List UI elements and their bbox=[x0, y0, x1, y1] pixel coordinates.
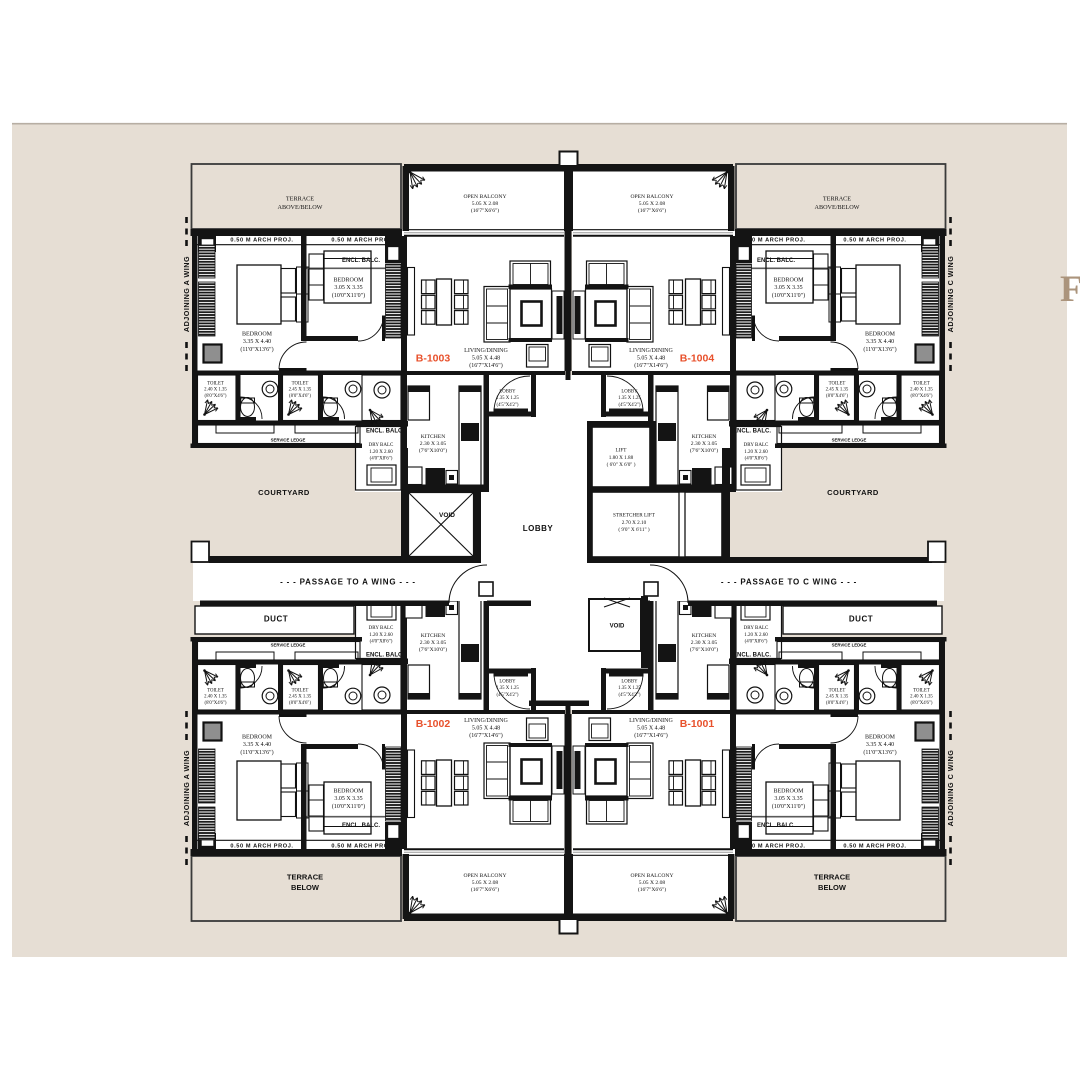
svg-text:COURTYARD: COURTYARD bbox=[827, 488, 879, 497]
svg-text:(16'7"X6'6"): (16'7"X6'6") bbox=[638, 886, 666, 893]
svg-text:(4'0"X8'6"): (4'0"X8'6") bbox=[370, 640, 393, 645]
svg-text:2.40 X 1.35: 2.40 X 1.35 bbox=[910, 388, 933, 393]
svg-text:3.05 X 3.35: 3.05 X 3.35 bbox=[334, 796, 362, 802]
svg-text:(16'7"X6'6"): (16'7"X6'6") bbox=[471, 886, 499, 893]
svg-text:(8'0"X4'6"): (8'0"X4'6") bbox=[911, 394, 933, 399]
svg-text:- - - PASSAGE TO C WIN: - - - PASSAGE TO C WING - - - bbox=[721, 577, 857, 586]
svg-text:(16'7"X14'6"): (16'7"X14'6") bbox=[634, 732, 667, 739]
svg-text:5.05 X 2.08: 5.05 X 2.08 bbox=[639, 201, 666, 207]
svg-text:BEDROOM: BEDROOM bbox=[865, 331, 896, 337]
svg-text:OPEN BALCONY: OPEN BALCONY bbox=[630, 873, 673, 879]
svg-text:(7'6"X10'0"): (7'6"X10'0") bbox=[419, 646, 447, 653]
svg-text:BEDROOM: BEDROOM bbox=[242, 734, 273, 740]
svg-text:(8'0"X4'6"): (8'0"X4'6") bbox=[289, 394, 311, 399]
svg-text:VOID: VOID bbox=[439, 512, 455, 519]
svg-text:LOBBY: LOBBY bbox=[523, 524, 554, 533]
svg-text:1.20 X 2.60: 1.20 X 2.60 bbox=[744, 633, 768, 638]
svg-text:LOBBY: LOBBY bbox=[499, 680, 516, 685]
svg-text:5.05 X 4.48: 5.05 X 4.48 bbox=[472, 726, 500, 732]
svg-text:LIFT: LIFT bbox=[616, 448, 628, 454]
svg-text:(16'7"X14'6"): (16'7"X14'6") bbox=[634, 362, 667, 369]
svg-text:1.20 X 2.60: 1.20 X 2.60 bbox=[369, 450, 393, 455]
svg-text:2.30 X 3.05: 2.30 X 3.05 bbox=[420, 640, 447, 646]
svg-text:(4'0"X8'6"): (4'0"X8'6") bbox=[745, 457, 768, 462]
svg-text:5.05 X 4.48: 5.05 X 4.48 bbox=[472, 356, 500, 362]
svg-text:1.20 X 2.60: 1.20 X 2.60 bbox=[744, 450, 768, 455]
svg-text:TOILET: TOILET bbox=[829, 688, 846, 693]
svg-text:KITCHEN: KITCHEN bbox=[692, 434, 717, 440]
svg-text:0.50 M ARCH PROJ.: 0.50 M ARCH PROJ. bbox=[843, 844, 906, 850]
svg-text:TERRACE: TERRACE bbox=[823, 195, 851, 202]
svg-text:STRETCHER LIFT: STRETCHER LIFT bbox=[613, 513, 656, 519]
svg-text:(7'6"X10'0"): (7'6"X10'0") bbox=[690, 646, 718, 653]
svg-text:(16'7"X6'6"): (16'7"X6'6") bbox=[471, 207, 499, 214]
svg-text:TERRACE: TERRACE bbox=[814, 872, 850, 881]
svg-text:SERVICE LEDGE: SERVICE LEDGE bbox=[832, 438, 867, 443]
svg-text:SERVICE LEDGE: SERVICE LEDGE bbox=[271, 438, 306, 443]
svg-text:DUCT: DUCT bbox=[264, 614, 288, 623]
svg-text:3.05 X 3.35: 3.05 X 3.35 bbox=[334, 285, 362, 291]
svg-text:(11'0"X13'6"): (11'0"X13'6") bbox=[240, 749, 273, 756]
svg-text:B-1004: B-1004 bbox=[680, 353, 715, 365]
svg-text:(16'7"X14'6"): (16'7"X14'6") bbox=[469, 732, 502, 739]
svg-text:TERRACE: TERRACE bbox=[287, 872, 323, 881]
svg-text:- - - PASSAGE TO A WIN: - - - PASSAGE TO A WING - - - bbox=[280, 577, 416, 586]
svg-text:DRY BALC: DRY BALC bbox=[369, 443, 394, 448]
svg-text:1.35 X 1.25: 1.35 X 1.25 bbox=[618, 686, 641, 691]
svg-text:BEDROOM: BEDROOM bbox=[773, 788, 804, 794]
svg-text:OPEN BALCONY: OPEN BALCONY bbox=[630, 194, 673, 200]
svg-text:1.80 X 1.88: 1.80 X 1.88 bbox=[609, 455, 634, 461]
svg-text:2.30 X 3.05: 2.30 X 3.05 bbox=[691, 640, 718, 646]
svg-text:F: F bbox=[1060, 269, 1080, 310]
svg-text:1.20 X 2.60: 1.20 X 2.60 bbox=[369, 633, 393, 638]
svg-text:1.35 X 1.25: 1.35 X 1.25 bbox=[496, 686, 519, 691]
svg-text:5.05 X 2.08: 5.05 X 2.08 bbox=[639, 880, 666, 886]
svg-text:5.05 X 2.08: 5.05 X 2.08 bbox=[472, 880, 499, 886]
svg-text:LIVING/DINING: LIVING/DINING bbox=[629, 348, 673, 354]
svg-text:(4'0"X8'6"): (4'0"X8'6") bbox=[370, 457, 393, 462]
svg-text:DRY BALC: DRY BALC bbox=[744, 626, 769, 631]
svg-text:3.35 X 4.40: 3.35 X 4.40 bbox=[866, 742, 894, 748]
svg-text:(4'5"X4'2"): (4'5"X4'2") bbox=[619, 693, 641, 698]
svg-text:(4'5"X4'2"): (4'5"X4'2") bbox=[497, 403, 519, 408]
svg-text:2.45 X 1.35: 2.45 X 1.35 bbox=[289, 695, 312, 700]
svg-text:(8'0"X4'6"): (8'0"X4'6") bbox=[826, 394, 848, 399]
svg-text:5.05 X 4.48: 5.05 X 4.48 bbox=[637, 726, 665, 732]
svg-text:5.05 X 2.08: 5.05 X 2.08 bbox=[472, 201, 499, 207]
svg-text:ABOVE/BELOW: ABOVE/BELOW bbox=[277, 204, 322, 211]
svg-text:BELOW: BELOW bbox=[291, 883, 320, 892]
svg-text:( 9'0" X 6'11" ): ( 9'0" X 6'11" ) bbox=[618, 526, 650, 533]
svg-text:LOBBY: LOBBY bbox=[621, 680, 638, 685]
svg-text:(8'0"X4'6"): (8'0"X4'6") bbox=[826, 701, 848, 706]
svg-text:(16'7"X14'6"): (16'7"X14'6") bbox=[469, 362, 502, 369]
svg-text:BEDROOM: BEDROOM bbox=[242, 331, 273, 337]
svg-text:COURTYARD: COURTYARD bbox=[258, 488, 310, 497]
svg-text:ENCL. BALC.: ENCL. BALC. bbox=[366, 429, 404, 435]
svg-text:TOILET: TOILET bbox=[292, 688, 309, 693]
svg-text:2.30 X 3.05: 2.30 X 3.05 bbox=[691, 441, 718, 447]
svg-text:(11'0"X13'6"): (11'0"X13'6") bbox=[863, 346, 896, 353]
svg-text:3.05 X 3.35: 3.05 X 3.35 bbox=[774, 796, 802, 802]
svg-text:LOBBY: LOBBY bbox=[499, 390, 516, 395]
svg-text:1.35 X 1.25: 1.35 X 1.25 bbox=[496, 396, 519, 401]
svg-text:(4'0"X8'6"): (4'0"X8'6") bbox=[745, 640, 768, 645]
svg-text:TOILET: TOILET bbox=[829, 381, 846, 386]
svg-text:(8'0"X4'6"): (8'0"X4'6") bbox=[911, 701, 933, 706]
svg-text:TOILET: TOILET bbox=[207, 381, 224, 386]
svg-text:BEDROOM: BEDROOM bbox=[865, 734, 896, 740]
svg-text:0.50 M ARCH PROJ.: 0.50 M ARCH PROJ. bbox=[230, 844, 293, 850]
svg-text:2.40 X 1.35: 2.40 X 1.35 bbox=[204, 388, 227, 393]
svg-text:TOILET: TOILET bbox=[913, 688, 930, 693]
svg-text:B-1001: B-1001 bbox=[680, 718, 715, 730]
svg-text:ADJOINING A WING: ADJOINING A WING bbox=[182, 750, 191, 826]
svg-text:( 6'0" X 6'0" ): ( 6'0" X 6'0" ) bbox=[607, 461, 636, 468]
svg-text:TOILET: TOILET bbox=[913, 381, 930, 386]
svg-text:OPEN BALCONY: OPEN BALCONY bbox=[463, 873, 506, 879]
svg-text:2.40 X 1.35: 2.40 X 1.35 bbox=[910, 695, 933, 700]
svg-text:5.05 X 4.48: 5.05 X 4.48 bbox=[637, 356, 665, 362]
svg-text:(8'0"X4'6"): (8'0"X4'6") bbox=[205, 701, 227, 706]
svg-text:(10'0"X11'0"): (10'0"X11'0") bbox=[772, 292, 805, 299]
svg-text:ABOVE/BELOW: ABOVE/BELOW bbox=[814, 204, 859, 211]
svg-text:LIVING/DINING: LIVING/DINING bbox=[464, 348, 508, 354]
svg-text:TERRACE: TERRACE bbox=[286, 195, 314, 202]
svg-text:ADJOINING A WING: ADJOINING A WING bbox=[182, 256, 191, 332]
svg-text:DRY BALC: DRY BALC bbox=[369, 626, 394, 631]
svg-text:OPEN BALCONY: OPEN BALCONY bbox=[463, 194, 506, 200]
svg-text:3.35 X 4.40: 3.35 X 4.40 bbox=[243, 339, 271, 345]
svg-text:VOID: VOID bbox=[610, 624, 625, 630]
svg-text:ADJOINING C WING: ADJOINING C WING bbox=[946, 256, 955, 333]
svg-text:2.45 X 1.35: 2.45 X 1.35 bbox=[826, 388, 849, 393]
svg-text:3.35 X 4.40: 3.35 X 4.40 bbox=[866, 339, 894, 345]
svg-text:1.35 X 1.25: 1.35 X 1.25 bbox=[618, 396, 641, 401]
svg-text:B-1003: B-1003 bbox=[416, 353, 451, 365]
svg-text:B-1002: B-1002 bbox=[416, 718, 451, 730]
svg-text:TOILET: TOILET bbox=[292, 381, 309, 386]
svg-text:2.70 X 2.10: 2.70 X 2.10 bbox=[622, 520, 647, 526]
svg-text:KITCHEN: KITCHEN bbox=[421, 434, 446, 440]
svg-text:(10'0"X11'0"): (10'0"X11'0") bbox=[772, 803, 805, 810]
svg-text:2.45 X 1.35: 2.45 X 1.35 bbox=[289, 388, 312, 393]
svg-text:2.45 X 1.35: 2.45 X 1.35 bbox=[826, 695, 849, 700]
svg-text:BEDROOM: BEDROOM bbox=[333, 277, 364, 283]
svg-text:3.05 X 3.35: 3.05 X 3.35 bbox=[774, 285, 802, 291]
svg-text:0.50 M ARCH PROJ.: 0.50 M ARCH PROJ. bbox=[230, 238, 293, 244]
svg-text:ENCL. BALC.: ENCL. BALC. bbox=[366, 653, 404, 659]
svg-text:BEDROOM: BEDROOM bbox=[773, 277, 804, 283]
svg-text:TOILET: TOILET bbox=[207, 688, 224, 693]
svg-text:(7'6"X10'0"): (7'6"X10'0") bbox=[419, 447, 447, 454]
svg-text:3.35 X 4.40: 3.35 X 4.40 bbox=[243, 742, 271, 748]
svg-text:KITCHEN: KITCHEN bbox=[692, 633, 717, 639]
svg-text:SERVICE LEDGE: SERVICE LEDGE bbox=[832, 643, 867, 648]
svg-text:(4'5"X4'2"): (4'5"X4'2") bbox=[619, 403, 641, 408]
svg-text:LIVING/DINING: LIVING/DINING bbox=[629, 718, 673, 724]
svg-text:SERVICE LEDGE: SERVICE LEDGE bbox=[271, 643, 306, 648]
svg-text:(11'0"X13'6"): (11'0"X13'6") bbox=[240, 346, 273, 353]
svg-text:(8'0"X4'6"): (8'0"X4'6") bbox=[205, 394, 227, 399]
svg-text:BELOW: BELOW bbox=[818, 883, 847, 892]
svg-text:ENCL. BALC.: ENCL. BALC. bbox=[733, 653, 771, 659]
svg-text:DRY BALC: DRY BALC bbox=[744, 443, 769, 448]
svg-text:2.40 X 1.35: 2.40 X 1.35 bbox=[204, 695, 227, 700]
svg-text:ENCL. BALC.: ENCL. BALC. bbox=[733, 429, 771, 435]
svg-text:(7'6"X10'0"): (7'6"X10'0") bbox=[690, 447, 718, 454]
svg-text:DUCT: DUCT bbox=[849, 614, 873, 623]
svg-text:(11'0"X13'6"): (11'0"X13'6") bbox=[863, 749, 896, 756]
svg-text:0.50 M ARCH PROJ.: 0.50 M ARCH PROJ. bbox=[843, 238, 906, 244]
svg-text:(10'0"X11'0"): (10'0"X11'0") bbox=[332, 803, 365, 810]
svg-text:(8'0"X4'6"): (8'0"X4'6") bbox=[289, 701, 311, 706]
svg-text:LIVING/DINING: LIVING/DINING bbox=[464, 718, 508, 724]
svg-text:KITCHEN: KITCHEN bbox=[421, 633, 446, 639]
svg-text:(16'7"X6'6"): (16'7"X6'6") bbox=[638, 207, 666, 214]
svg-text:(10'0"X11'0"): (10'0"X11'0") bbox=[332, 292, 365, 299]
svg-text:2.30 X 3.05: 2.30 X 3.05 bbox=[420, 441, 447, 447]
svg-text:ADJOINING C WING: ADJOINING C WING bbox=[946, 750, 955, 827]
svg-text:BEDROOM: BEDROOM bbox=[333, 788, 364, 794]
